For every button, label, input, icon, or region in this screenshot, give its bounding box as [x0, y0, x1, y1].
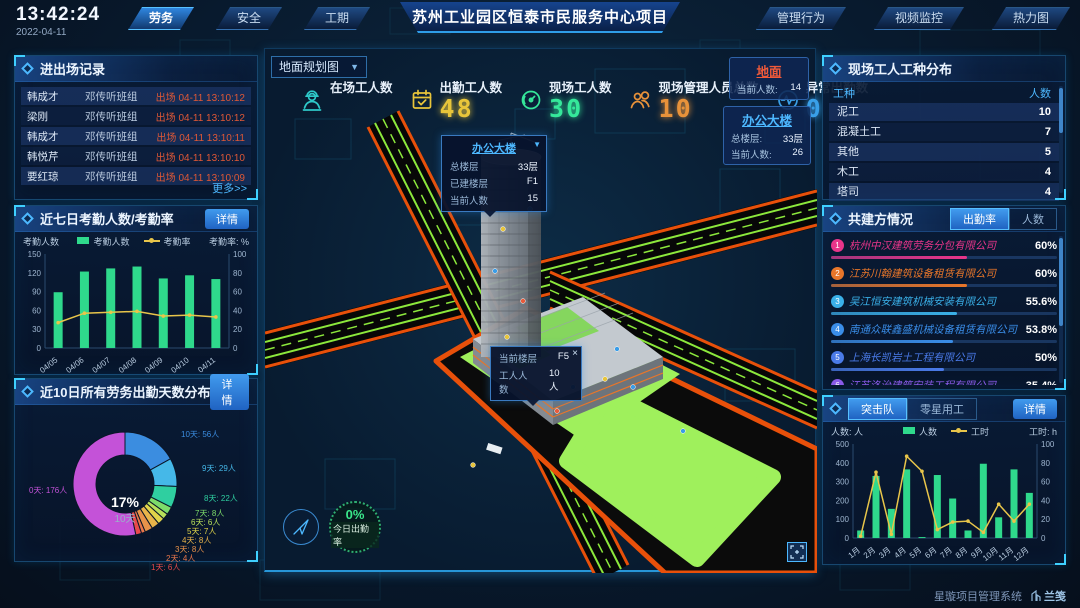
top-bar: 13:42:24 2022-04-11 劳务安全工期 苏州工业园区恒泰市民服务中…: [0, 0, 1080, 40]
team-name: 邓传听班组: [85, 169, 156, 184]
stat-text: 出勤工人数48: [440, 77, 503, 122]
today-attendance-gauge: 0% 今日出勤率: [329, 501, 381, 553]
clock: 13:42:24 2022-04-11: [16, 4, 100, 38]
svg-text:80: 80: [233, 269, 242, 278]
worker-type-table-head: 工种人数: [823, 82, 1065, 103]
partners-header: 共建方情况 出勤率 人数: [823, 206, 1065, 232]
dashboard-root: 13:42:24 2022-04-11 劳务安全工期 苏州工业园区恒泰市民服务中…: [0, 0, 1080, 608]
svg-text:40: 40: [233, 306, 242, 315]
rank-badge: 6: [831, 379, 844, 385]
partner-name: 江苏川翰建筑设备租赁有限公司: [849, 266, 1030, 281]
current-date: 2022-04-11: [16, 27, 100, 38]
partner-progress-track: [831, 256, 1057, 259]
gauge-label: 今日出勤率: [331, 522, 379, 548]
partner-value: 53.8%: [1026, 324, 1057, 336]
map-view-select-value: 地面规划图: [279, 60, 339, 74]
gauge-icon: [518, 87, 544, 113]
attendance-panel: 近七日考勤人数/考勤率 详情 考勤人数 考勤人数 考勤率 考勤率: % 0030…: [14, 205, 258, 375]
diamond-icon: [829, 62, 842, 75]
svg-text:60: 60: [32, 306, 41, 315]
navigation-arrow-icon: [291, 517, 311, 537]
stat-0: 在场工人数: [299, 77, 393, 122]
tab-attendance-rate[interactable]: 出勤率: [950, 208, 1009, 230]
view-tabs: 管理行为视频监控热力图: [756, 7, 1070, 30]
map-vehicle: [486, 443, 502, 454]
view-tab-1[interactable]: 视频监控: [874, 7, 964, 30]
partner-line: 4南通众联鑫盛机械设备租赁有限公司53.8%: [831, 322, 1057, 337]
office-card-title[interactable]: 办公大楼: [731, 110, 803, 129]
entry-exit-row: 梁刚邓传听班组出场 04-11 13:10:12: [21, 107, 251, 125]
current-time: 13:42:24: [16, 4, 100, 26]
partner-value: 50%: [1035, 352, 1057, 364]
diamond-icon: [21, 212, 34, 225]
project-title-text: 苏州工业园区恒泰市民服务中心项目: [412, 9, 668, 26]
donut-callout-label: 1天: 6人: [151, 562, 180, 573]
diamond-icon: [21, 62, 34, 75]
diamond-icon: [21, 385, 34, 398]
tooltip-row: 当前楼层F5: [499, 351, 569, 365]
scrollbar[interactable]: [1059, 236, 1063, 383]
worker-type-header: 现场工人工种分布: [823, 56, 1065, 82]
assault-legend: 人数 工时: [903, 425, 989, 438]
team-name: 邓传听班组: [85, 129, 156, 144]
left-axis-caption: 人数: 人: [831, 425, 863, 438]
svg-text:300: 300: [836, 478, 850, 487]
svg-text:100: 100: [836, 515, 850, 524]
partner-line: 3吴江恒安建筑机械安装有限公司55.6%: [831, 294, 1057, 309]
people-icon: [628, 87, 654, 113]
partner-name: 上海长凯岩土工程有限公司: [849, 350, 1030, 365]
svg-text:30: 30: [32, 325, 41, 334]
assault-team-panel: 突击队 零星用工 详情 人数: 人 人数 工时 工时: h 0010020200…: [822, 395, 1066, 565]
svg-text:5月: 5月: [908, 545, 923, 560]
partner-progress-fill: [831, 256, 967, 259]
svg-text:04/07: 04/07: [91, 355, 113, 374]
brand-logo: 兰笺: [1030, 588, 1066, 604]
stat-1: 出勤工人数48: [409, 77, 503, 122]
svg-text:04/06: 04/06: [64, 355, 86, 374]
partner-value: 55.6%: [1026, 296, 1057, 308]
legend-bar-item: 考勤人数: [77, 235, 129, 248]
partners-list: 1杭州中汉建筑劳务分包有限公司60%2江苏川翰建筑设备租赁有限公司60%3吴江恒…: [823, 232, 1065, 385]
gauge-value: 0%: [346, 507, 365, 522]
exit-event: 出场 04-11 13:10:12: [156, 109, 245, 124]
partner-line: 6江苏洛治建筑安装工程有限公司35.4%: [831, 378, 1057, 385]
tooltip-row: 已建楼层F1: [450, 176, 538, 190]
stat-value: 30: [549, 96, 612, 122]
entry-exit-header: 进出场记录: [15, 56, 257, 82]
svg-text:200: 200: [836, 496, 850, 505]
partner-name: 杭州中汉建筑劳务分包有限公司: [849, 238, 1030, 253]
building-tooltip-title[interactable]: 办公大楼: [450, 140, 538, 156]
svg-text:0: 0: [233, 344, 238, 353]
fullscreen-button[interactable]: [787, 542, 807, 562]
card-row: 当前人数:14: [737, 82, 801, 96]
legend-line-item: 考勤率: [144, 235, 191, 248]
partner-progress-fill: [831, 312, 957, 315]
building-tooltip: 办公大楼 ▼ 总楼层33层 已建楼层F1 当前人数15: [441, 135, 547, 212]
stat-2: 现场工人数30: [518, 77, 612, 122]
svg-text:500: 500: [836, 440, 850, 449]
svg-text:0: 0: [37, 344, 42, 353]
svg-text:3月: 3月: [877, 545, 892, 560]
entry-exit-row: 韩成才邓传听班组出场 04-11 13:10:12: [21, 87, 251, 105]
rank-badge: 3: [831, 295, 844, 308]
compass-control[interactable]: [283, 509, 319, 545]
assault-header: 突击队 零星用工 详情: [823, 396, 1065, 422]
worker-name: 韩成才: [27, 129, 85, 144]
svg-text:40: 40: [1041, 496, 1050, 505]
partner-row[interactable]: 4南通众联鑫盛机械设备租赁有限公司53.8%: [831, 322, 1057, 343]
mode-tab-1[interactable]: 安全: [216, 7, 282, 30]
map-view-select[interactable]: 地面规划图 ▼: [271, 56, 367, 78]
svg-text:4月: 4月: [893, 545, 908, 560]
worker-icon: [299, 87, 325, 113]
worker-name: 韩悦芹: [27, 149, 85, 164]
team-name: 邓传听班组: [85, 89, 156, 104]
partner-row[interactable]: 1杭州中汉建筑劳务分包有限公司60%: [831, 238, 1057, 259]
donut-callout-label: 8天: 22人: [204, 493, 238, 504]
rank-badge: 2: [831, 267, 844, 280]
donut-callout-label: 9天: 29人: [202, 463, 236, 474]
scrollbar-thumb[interactable]: [1059, 238, 1063, 326]
partner-row[interactable]: 5上海长凯岩土工程有限公司50%: [831, 350, 1057, 371]
entry-exit-row: 韩悦芹邓传听班组出场 04-11 13:10:10: [21, 147, 251, 165]
ground-card-title[interactable]: 地面: [737, 61, 801, 80]
close-icon[interactable]: ×: [572, 348, 578, 359]
svg-text:90: 90: [32, 288, 41, 297]
svg-text:04/10: 04/10: [169, 355, 191, 374]
svg-text:7月: 7月: [939, 545, 954, 560]
entry-exit-panel: 进出场记录 韩成才邓传听班组出场 04-11 13:10:12梁刚邓传听班组出场…: [14, 55, 258, 200]
svg-text:20: 20: [233, 325, 242, 334]
partner-progress-fill: [831, 340, 953, 343]
entry-exit-row: 韩成才邓传听班组出场 04-11 13:10:11: [21, 127, 251, 145]
tab-assault-team[interactable]: 突击队: [848, 398, 907, 420]
entry-exit-list: 韩成才邓传听班组出场 04-11 13:10:12梁刚邓传听班组出场 04-11…: [15, 82, 257, 185]
stat-text: 在场工人数: [330, 77, 393, 96]
view-tab-0[interactable]: 管理行为: [756, 7, 846, 30]
partners-title: 共建方情况: [848, 209, 913, 228]
diamond-icon: [829, 212, 842, 225]
chevron-down-icon[interactable]: ▼: [533, 140, 541, 149]
partner-name: 吴江恒安建筑机械安装有限公司: [849, 294, 1021, 309]
partner-progress-fill: [831, 368, 944, 371]
worker-type-row: 其他5: [829, 143, 1059, 161]
worker-name: 梁刚: [27, 109, 85, 124]
assault-detail-button[interactable]: 详情: [1013, 399, 1057, 419]
svg-text:04/11: 04/11: [196, 355, 217, 374]
svg-text:04/05: 04/05: [38, 355, 60, 374]
svg-text:8月: 8月: [954, 545, 969, 560]
donut-center-sub: 10天: [93, 510, 157, 525]
right-axis-caption: 工时: h: [1029, 425, 1057, 438]
attendance-header: 近七日考勤人数/考勤率 详情: [15, 206, 257, 232]
svg-text:60: 60: [1041, 478, 1050, 487]
fullscreen-icon: [790, 545, 804, 559]
mode-tab-0[interactable]: 劳务: [128, 7, 194, 30]
worker-type-row: 混凝土工7: [829, 123, 1059, 141]
svg-text:04/09: 04/09: [143, 355, 165, 374]
svg-text:2月: 2月: [862, 545, 877, 560]
card-row: 当前人数:26: [731, 147, 803, 161]
stat-text: 现场工人数30: [549, 77, 612, 122]
footer: 星璇项目管理系统 兰笺: [934, 588, 1066, 604]
svg-text:6月: 6月: [923, 545, 938, 560]
worker-type-panel: 现场工人工种分布 工种人数 泥工10混凝土工7其他5木工4塔司4: [822, 55, 1066, 200]
right-axis-caption: 考勤率: %: [209, 235, 249, 248]
partners-tabs: 出勤率 人数: [950, 208, 1057, 230]
attendance-detail-button[interactable]: 详情: [205, 209, 249, 229]
tooltip-row: 总楼层33层: [450, 159, 538, 173]
worker-name: 要红琼: [27, 169, 85, 184]
partner-row[interactable]: 3吴江恒安建筑机械安装有限公司55.6%: [831, 294, 1057, 315]
view-tab-2[interactable]: 热力图: [992, 7, 1070, 30]
brand-logo-text: 兰笺: [1044, 588, 1066, 604]
partner-progress-track: [831, 312, 1057, 315]
svg-text:12月: 12月: [1012, 545, 1031, 563]
svg-text:80: 80: [1041, 459, 1050, 468]
attendance-legend: 考勤人数 考勤率: [77, 235, 190, 248]
partner-progress-track: [831, 284, 1057, 287]
attendance-chart: 003020604090601208015010004/0504/0604/07…: [15, 248, 259, 374]
svg-text:100: 100: [233, 250, 247, 259]
distribution-title: 近10日所有劳务出勤天数分布: [40, 382, 210, 401]
distribution-donut-chart: [15, 405, 259, 563]
exit-event: 出场 04-11 13:10:12: [156, 89, 245, 104]
page-title: 苏州工业园区恒泰市民服务中心项目: [400, 2, 680, 33]
worker-name: 韩成才: [27, 89, 85, 104]
assault-tabs: 突击队 零星用工: [848, 398, 977, 420]
donut-center-pct: 17%: [93, 494, 157, 510]
partner-progress-track: [831, 340, 1057, 343]
partner-row[interactable]: 2江苏川翰建筑设备租赁有限公司60%: [831, 266, 1057, 287]
worker-type-row: 塔司4: [829, 183, 1059, 201]
svg-text:0: 0: [1041, 534, 1046, 543]
partner-line: 5上海长凯岩土工程有限公司50%: [831, 350, 1057, 365]
partner-name: 江苏洛治建筑安装工程有限公司: [849, 378, 1021, 385]
floor-tooltip: × 当前楼层F5 工人人数10人: [490, 346, 582, 401]
stat-label: 在场工人数: [330, 77, 393, 96]
attendance-title: 近七日考勤人数/考勤率: [40, 209, 174, 228]
left-axis-caption: 考勤人数: [23, 235, 59, 248]
partner-line: 1杭州中汉建筑劳务分包有限公司60%: [831, 238, 1057, 253]
worker-type-title: 现场工人工种分布: [848, 59, 952, 78]
chevron-down-icon: ▼: [350, 57, 359, 77]
svg-text:120: 120: [28, 269, 42, 278]
partner-name: 南通众联鑫盛机械设备租赁有限公司: [849, 322, 1021, 337]
brand-logo-icon: [1030, 590, 1041, 602]
svg-text:20: 20: [1041, 515, 1050, 524]
attendance-axis-captions: 考勤人数 考勤人数 考勤率 考勤率: %: [15, 232, 257, 248]
svg-text:0: 0: [845, 534, 850, 543]
office-building-card: 办公大楼 总楼层:33层 当前人数:26: [723, 106, 811, 165]
worker-type-row: 木工4: [829, 163, 1059, 181]
rank-badge: 1: [831, 239, 844, 252]
stat-value: 48: [440, 96, 503, 122]
legend-bar-item: 人数: [903, 425, 937, 438]
distribution-panel: 近10日所有劳务出勤天数分布 详情 10天: 56人9天: 29人8天: 22人…: [14, 378, 258, 562]
svg-text:400: 400: [836, 459, 850, 468]
legend-line-item: 工时: [951, 425, 989, 438]
partner-row[interactable]: 6江苏洛治建筑安装工程有限公司35.4%: [831, 378, 1057, 385]
svg-text:150: 150: [28, 250, 42, 259]
distribution-header: 近10日所有劳务出勤天数分布 详情: [15, 379, 257, 405]
donut-callout-label: 0天: 176人: [29, 485, 67, 496]
entry-exit-title: 进出场记录: [40, 59, 105, 78]
worker-type-table: 泥工10混凝土工7其他5木工4塔司4: [823, 103, 1065, 201]
mode-tab-2[interactable]: 工期: [304, 7, 370, 30]
mode-tabs: 劳务安全工期: [128, 7, 370, 30]
team-name: 邓传听班组: [85, 109, 156, 124]
worker-type-row: 泥工10: [829, 103, 1059, 121]
partner-value: 60%: [1035, 268, 1057, 280]
tooltip-row: 工人人数10人: [499, 368, 569, 396]
more-link[interactable]: 更多>>: [212, 180, 247, 196]
partner-value: 60%: [1035, 240, 1057, 252]
svg-text:60: 60: [233, 288, 242, 297]
partners-panel: 共建方情况 出勤率 人数 1杭州中汉建筑劳务分包有限公司60%2江苏川翰建筑设备…: [822, 205, 1066, 390]
partner-progress-fill: [831, 284, 967, 287]
card-row: 总楼层:33层: [731, 131, 803, 145]
svg-text:100: 100: [1041, 440, 1055, 449]
scrollbar-thumb[interactable]: [1059, 88, 1063, 133]
tooltip-row: 当前人数15: [450, 193, 538, 207]
svg-text:1月: 1月: [847, 545, 862, 560]
svg-text:04/08: 04/08: [117, 355, 139, 374]
exit-event: 出场 04-11 13:10:10: [156, 149, 245, 164]
partner-line: 2江苏川翰建筑设备租赁有限公司60%: [831, 266, 1057, 281]
system-name: 星璇项目管理系统: [934, 588, 1022, 604]
donut-callout-label: 10天: 56人: [181, 429, 219, 440]
diamond-icon: [829, 402, 842, 415]
exit-event: 出场 04-11 13:10:11: [156, 129, 245, 144]
assault-axis-captions: 人数: 人 人数 工时 工时: h: [823, 422, 1065, 438]
rank-badge: 4: [831, 323, 844, 336]
tab-casual-labor[interactable]: 零星用工: [907, 398, 977, 420]
tab-headcount[interactable]: 人数: [1009, 208, 1057, 230]
calendar-check-icon: [409, 87, 435, 113]
donut-center-label: 17% 10天: [93, 494, 157, 525]
partner-progress-track: [831, 368, 1057, 371]
rank-badge: 5: [831, 351, 844, 364]
scrollbar[interactable]: [1059, 86, 1063, 193]
team-name: 邓传听班组: [85, 149, 156, 164]
partner-value: 35.4%: [1026, 380, 1057, 386]
assault-chart: 00100202004030060400805001001月2月3月4月5月6月…: [823, 438, 1067, 564]
site-map-panel: 地面规划图 ▼ 在场工人数出勤工人数48现场工人数30现场管理人员总数10异常出…: [264, 48, 816, 572]
ground-card: 地面 当前人数:14: [729, 57, 809, 100]
